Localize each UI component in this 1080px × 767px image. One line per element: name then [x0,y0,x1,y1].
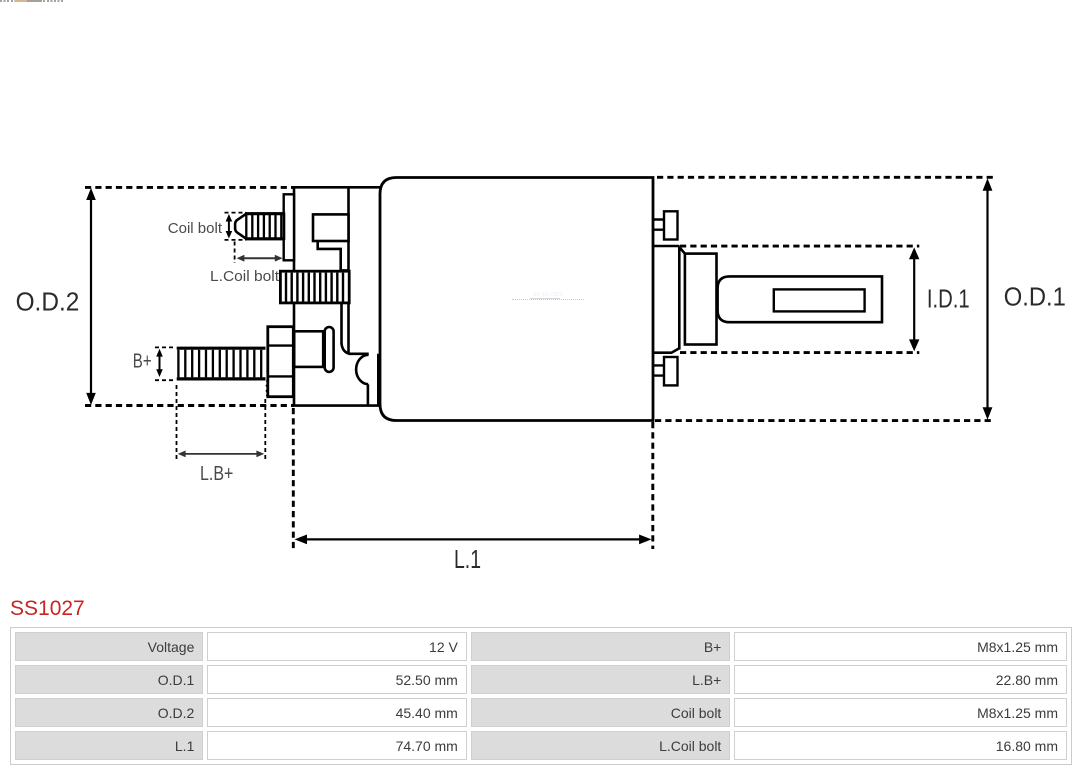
svg-text:L.Coil bolt: L.Coil bolt [210,268,280,285]
svg-text:I.D.1: I.D.1 [927,283,970,313]
svg-text:L.B+: L.B+ [200,463,233,485]
svg-text:Coil bolt: Coil bolt [168,220,223,237]
svg-text:O.D.1: O.D.1 [1004,282,1066,312]
svg-text:O.D.2: O.D.2 [16,287,80,317]
svg-text:B+: B+ [133,351,152,373]
svg-text:L.1: L.1 [454,544,481,574]
